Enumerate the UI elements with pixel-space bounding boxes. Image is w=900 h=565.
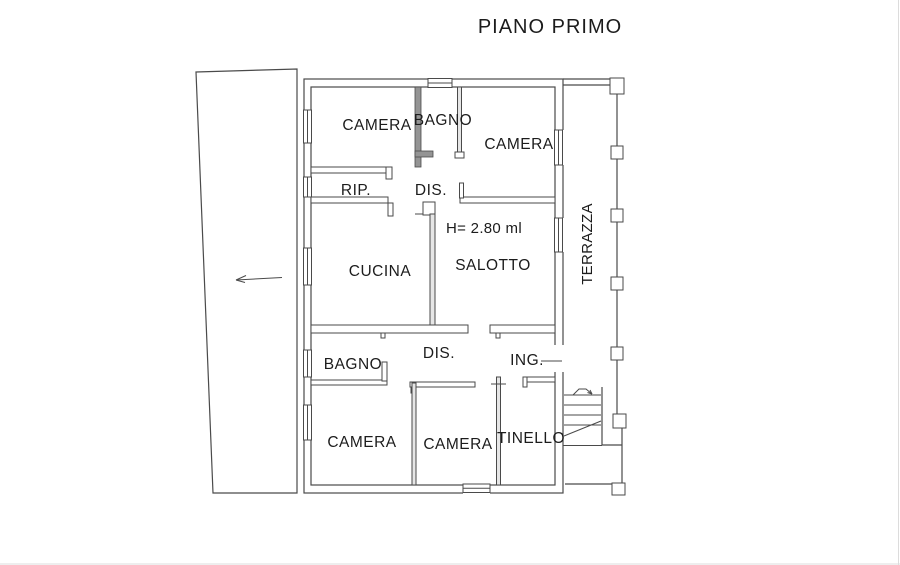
room-label-bagno-bottom: BAGNO [324,356,382,373]
stairs-direction-arrow-icon [573,389,592,395]
left-terrace [196,69,297,493]
slope-arrow-icon [236,276,282,283]
room-label-dis-top: DIS. [415,182,447,199]
room-label-tinello: TINELLO [497,430,565,447]
door-symbol [415,202,435,215]
entrance-door-opening [541,345,565,372]
window [302,177,313,197]
window [554,218,565,252]
window [463,483,490,494]
terrace-pillar [611,277,623,290]
terrace-pillar [613,414,626,428]
floorplan-drawing: PIANO PRIMO CAMERA BAGNO CAMERA RIP. DIS… [0,0,900,565]
terrace-pillar [611,209,623,222]
room-label-terrazza: TERRAZZA [579,203,596,285]
room-label-camera-top-right: CAMERA [484,136,553,153]
window [428,78,452,89]
terrace-pillar [611,347,623,360]
room-label-ing: ING. [510,352,544,369]
room-label-rip: RIP. [341,182,371,199]
room-label-cucina: CUCINA [349,263,412,280]
room-label-camera-bottom-middle: CAMERA [423,436,492,453]
floorplan-canvas: PIANO PRIMO CAMERA BAGNO CAMERA RIP. DIS… [0,0,900,565]
terrace-landing [565,387,625,495]
room-label-bagno-top: BAGNO [414,112,472,129]
window [302,405,313,440]
window [302,110,313,143]
room-label-camera-bottom-left: CAMERA [327,434,396,451]
page-title: PIANO PRIMO [478,16,622,38]
room-label-camera-top-left: CAMERA [342,117,411,134]
stair-diagonal [564,421,601,436]
left-terrace-outline [196,69,297,493]
terrace-pillar [612,483,625,495]
ceiling-height-annotation: H= 2.80 ml [446,220,522,237]
terrace-pillar [611,146,623,159]
window [302,350,313,377]
staircase [563,389,602,446]
terrace-pillar [610,78,624,94]
window [302,248,313,285]
window [554,130,565,165]
room-label-dis-bottom: DIS. [423,345,455,362]
room-label-salotto: SALOTTO [455,257,531,274]
